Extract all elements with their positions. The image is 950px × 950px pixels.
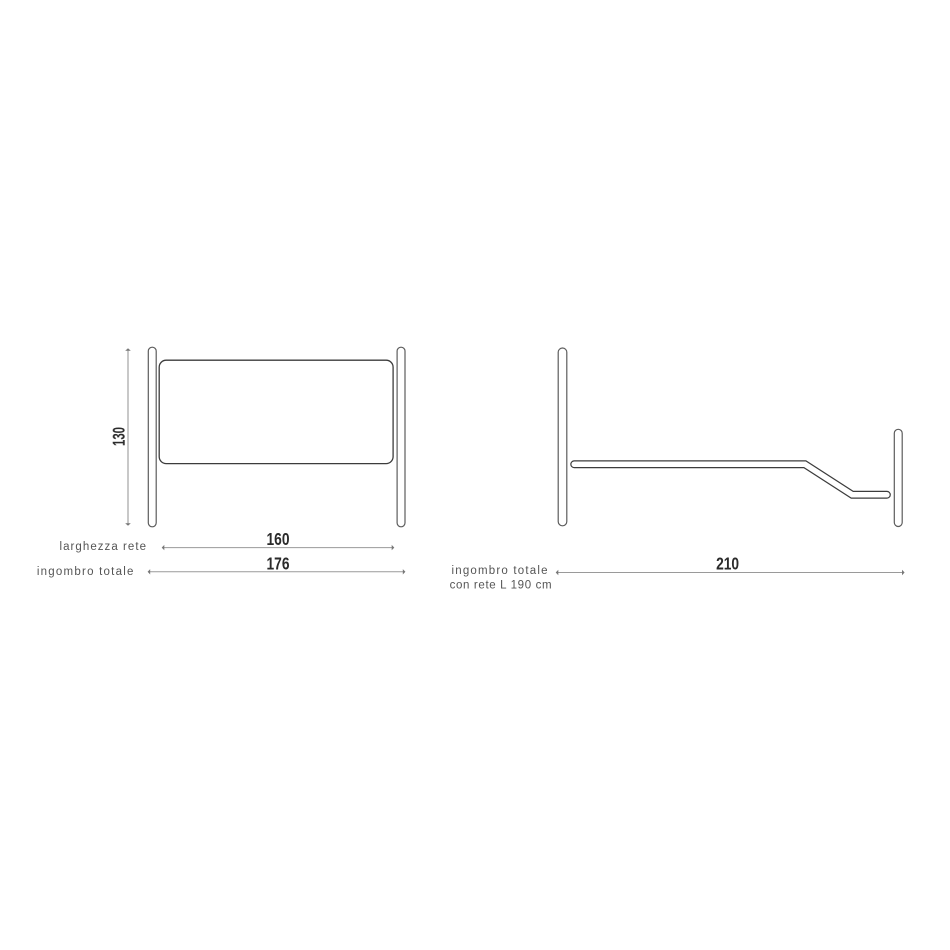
svg-text:210: 210 — [716, 553, 739, 573]
svg-text:con rete L 190 cm: con rete L 190 cm — [450, 580, 552, 592]
svg-text:ingombro totale: ingombro totale — [452, 565, 548, 577]
svg-text:130: 130 — [109, 427, 129, 446]
svg-text:larghezza rete: larghezza rete — [60, 541, 147, 553]
svg-text:176: 176 — [267, 554, 290, 574]
svg-text:ingombro totale: ingombro totale — [37, 566, 133, 578]
svg-text:160: 160 — [267, 529, 290, 549]
